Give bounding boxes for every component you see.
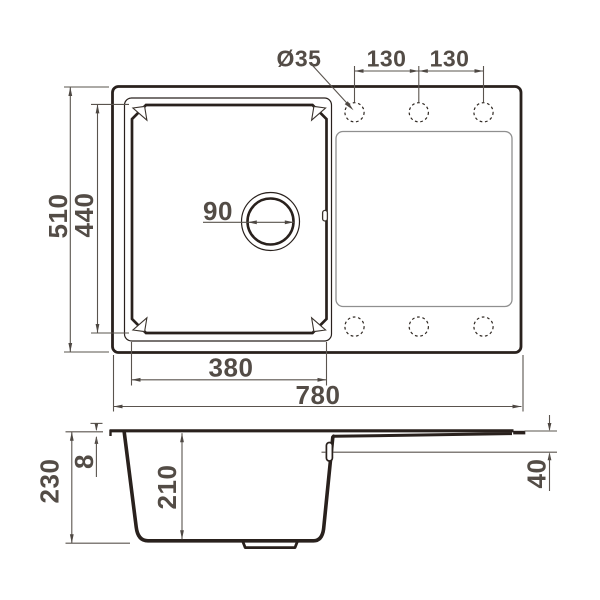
dim-arrow — [132, 378, 141, 382]
faucet-hole — [409, 103, 428, 122]
dim-label-drain-diameter: 90 — [203, 196, 233, 226]
faucet-hole — [345, 317, 364, 336]
section-drainboard-surface — [334, 434, 513, 437]
dim-bowl-depth: 210 — [152, 433, 184, 539]
plan-view: 130 130 Ø35 510 440 — [43, 46, 523, 412]
dim-arrow — [355, 69, 364, 73]
drainboard-outline — [336, 132, 512, 307]
dim-arrow — [70, 432, 74, 441]
faucet-hole — [474, 317, 493, 336]
dim-label-bowl-length: 380 — [209, 352, 254, 382]
section-view: 230 8 210 40 — [35, 415, 557, 548]
dim-arrow — [68, 87, 72, 96]
dim-arrow — [248, 220, 257, 224]
dim-overall-depth: 230 — [35, 432, 130, 543]
dim-hole-diameter: Ø35 — [277, 46, 354, 111]
dim-label-hole-spacing-left: 130 — [367, 46, 407, 72]
dim-arrow — [180, 530, 184, 539]
bowl-corner-facet-tl — [133, 106, 147, 120]
dim-arrow — [96, 324, 100, 333]
dim-arrow — [95, 423, 99, 431]
dim-label-rim-thickness: 8 — [69, 454, 99, 469]
sink-technical-drawing: 130 130 Ø35 510 440 — [0, 0, 600, 600]
dim-arrow — [96, 104, 100, 113]
bowl-corner-facet-tr — [312, 106, 326, 120]
dim-arrow — [513, 405, 522, 409]
dim-arrow — [180, 433, 184, 442]
dim-label-bowl-depth: 210 — [152, 465, 182, 510]
dim-label-overall-depth: 230 — [35, 459, 65, 504]
dim-arrow — [68, 343, 72, 352]
dim-arrow — [114, 405, 123, 409]
drain-outer-circle — [242, 193, 300, 251]
dim-label-bowl-width: 440 — [69, 193, 99, 238]
dim-overall-length: 780 — [114, 355, 524, 412]
faucet-hole — [409, 317, 428, 336]
dim-label-hole-diameter: Ø35 — [277, 46, 322, 72]
overflow-slot-section — [326, 443, 332, 462]
bowl-corner-facet-bl — [133, 318, 147, 332]
drawing-canvas: 130 130 Ø35 510 440 — [0, 0, 600, 600]
sink-outer-edge — [113, 87, 522, 353]
dim-arrow — [410, 69, 419, 73]
faucet-hole — [474, 103, 493, 122]
faucet-holes — [345, 103, 493, 337]
dim-label-drainboard-depth: 40 — [522, 459, 552, 489]
dim-arrow — [70, 534, 74, 543]
dim-drainboard-depth: 40 — [322, 415, 558, 491]
dim-arrow — [548, 423, 552, 431]
bowl-corner-facet-br — [312, 318, 326, 332]
dim-hole-spacing: 130 130 — [355, 46, 484, 103]
overflow-slot-plan — [323, 210, 328, 221]
dim-arrow — [475, 69, 484, 73]
dim-label-hole-spacing-right: 130 — [430, 46, 470, 72]
dim-arrow — [419, 69, 428, 73]
dim-bowl-width: 440 — [69, 104, 129, 333]
dim-label-overall-length: 780 — [296, 380, 341, 410]
